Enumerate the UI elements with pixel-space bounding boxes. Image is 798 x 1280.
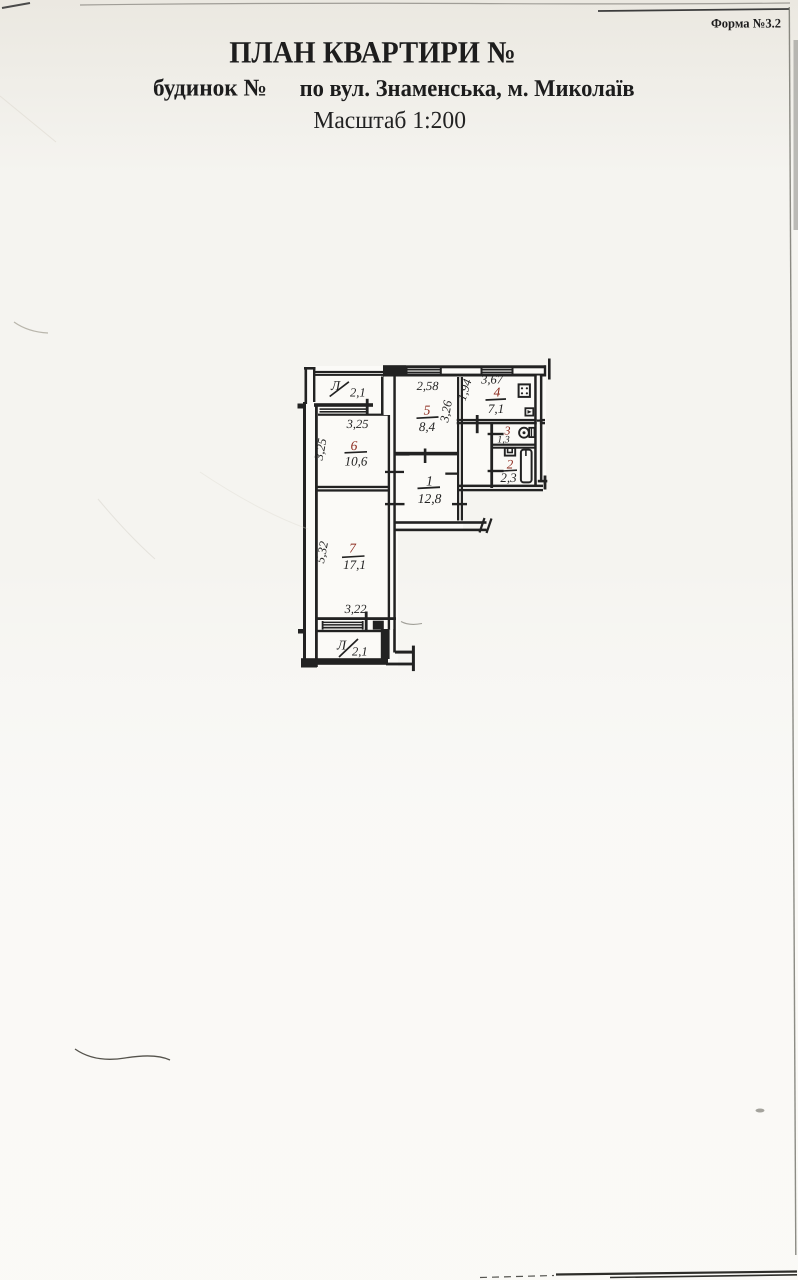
svg-text:Форма №3.2: Форма №3.2 <box>711 16 781 31</box>
svg-text:будинок №: будинок № <box>153 76 267 102</box>
svg-text:3,25: 3,25 <box>346 417 369 431</box>
svg-text:5: 5 <box>424 403 431 418</box>
svg-text:2,1: 2,1 <box>352 645 368 659</box>
svg-text:2,1: 2,1 <box>350 386 366 400</box>
svg-text:Масштаб 1:200: Масштаб 1:200 <box>313 107 466 134</box>
svg-text:ПЛАН КВАРТИРИ №: ПЛАН КВАРТИРИ № <box>229 35 516 70</box>
svg-text:17,1: 17,1 <box>343 557 366 572</box>
svg-text:12,8: 12,8 <box>418 491 442 506</box>
svg-text:10,6: 10,6 <box>345 454 368 469</box>
svg-text:6: 6 <box>351 438 358 453</box>
svg-text:4: 4 <box>494 385 501 400</box>
svg-text:3,67: 3,67 <box>480 373 504 387</box>
svg-text:7,1: 7,1 <box>488 401 504 416</box>
svg-text:2,3: 2,3 <box>500 470 517 485</box>
svg-text:Л: Л <box>330 378 341 393</box>
svg-text:по вул. Знаменська, м. Миколаї: по вул. Знаменська, м. Миколаїв <box>300 76 635 102</box>
svg-text:8,4: 8,4 <box>419 419 436 434</box>
svg-text:2,58: 2,58 <box>417 379 440 393</box>
svg-text:3,22: 3,22 <box>344 602 367 616</box>
